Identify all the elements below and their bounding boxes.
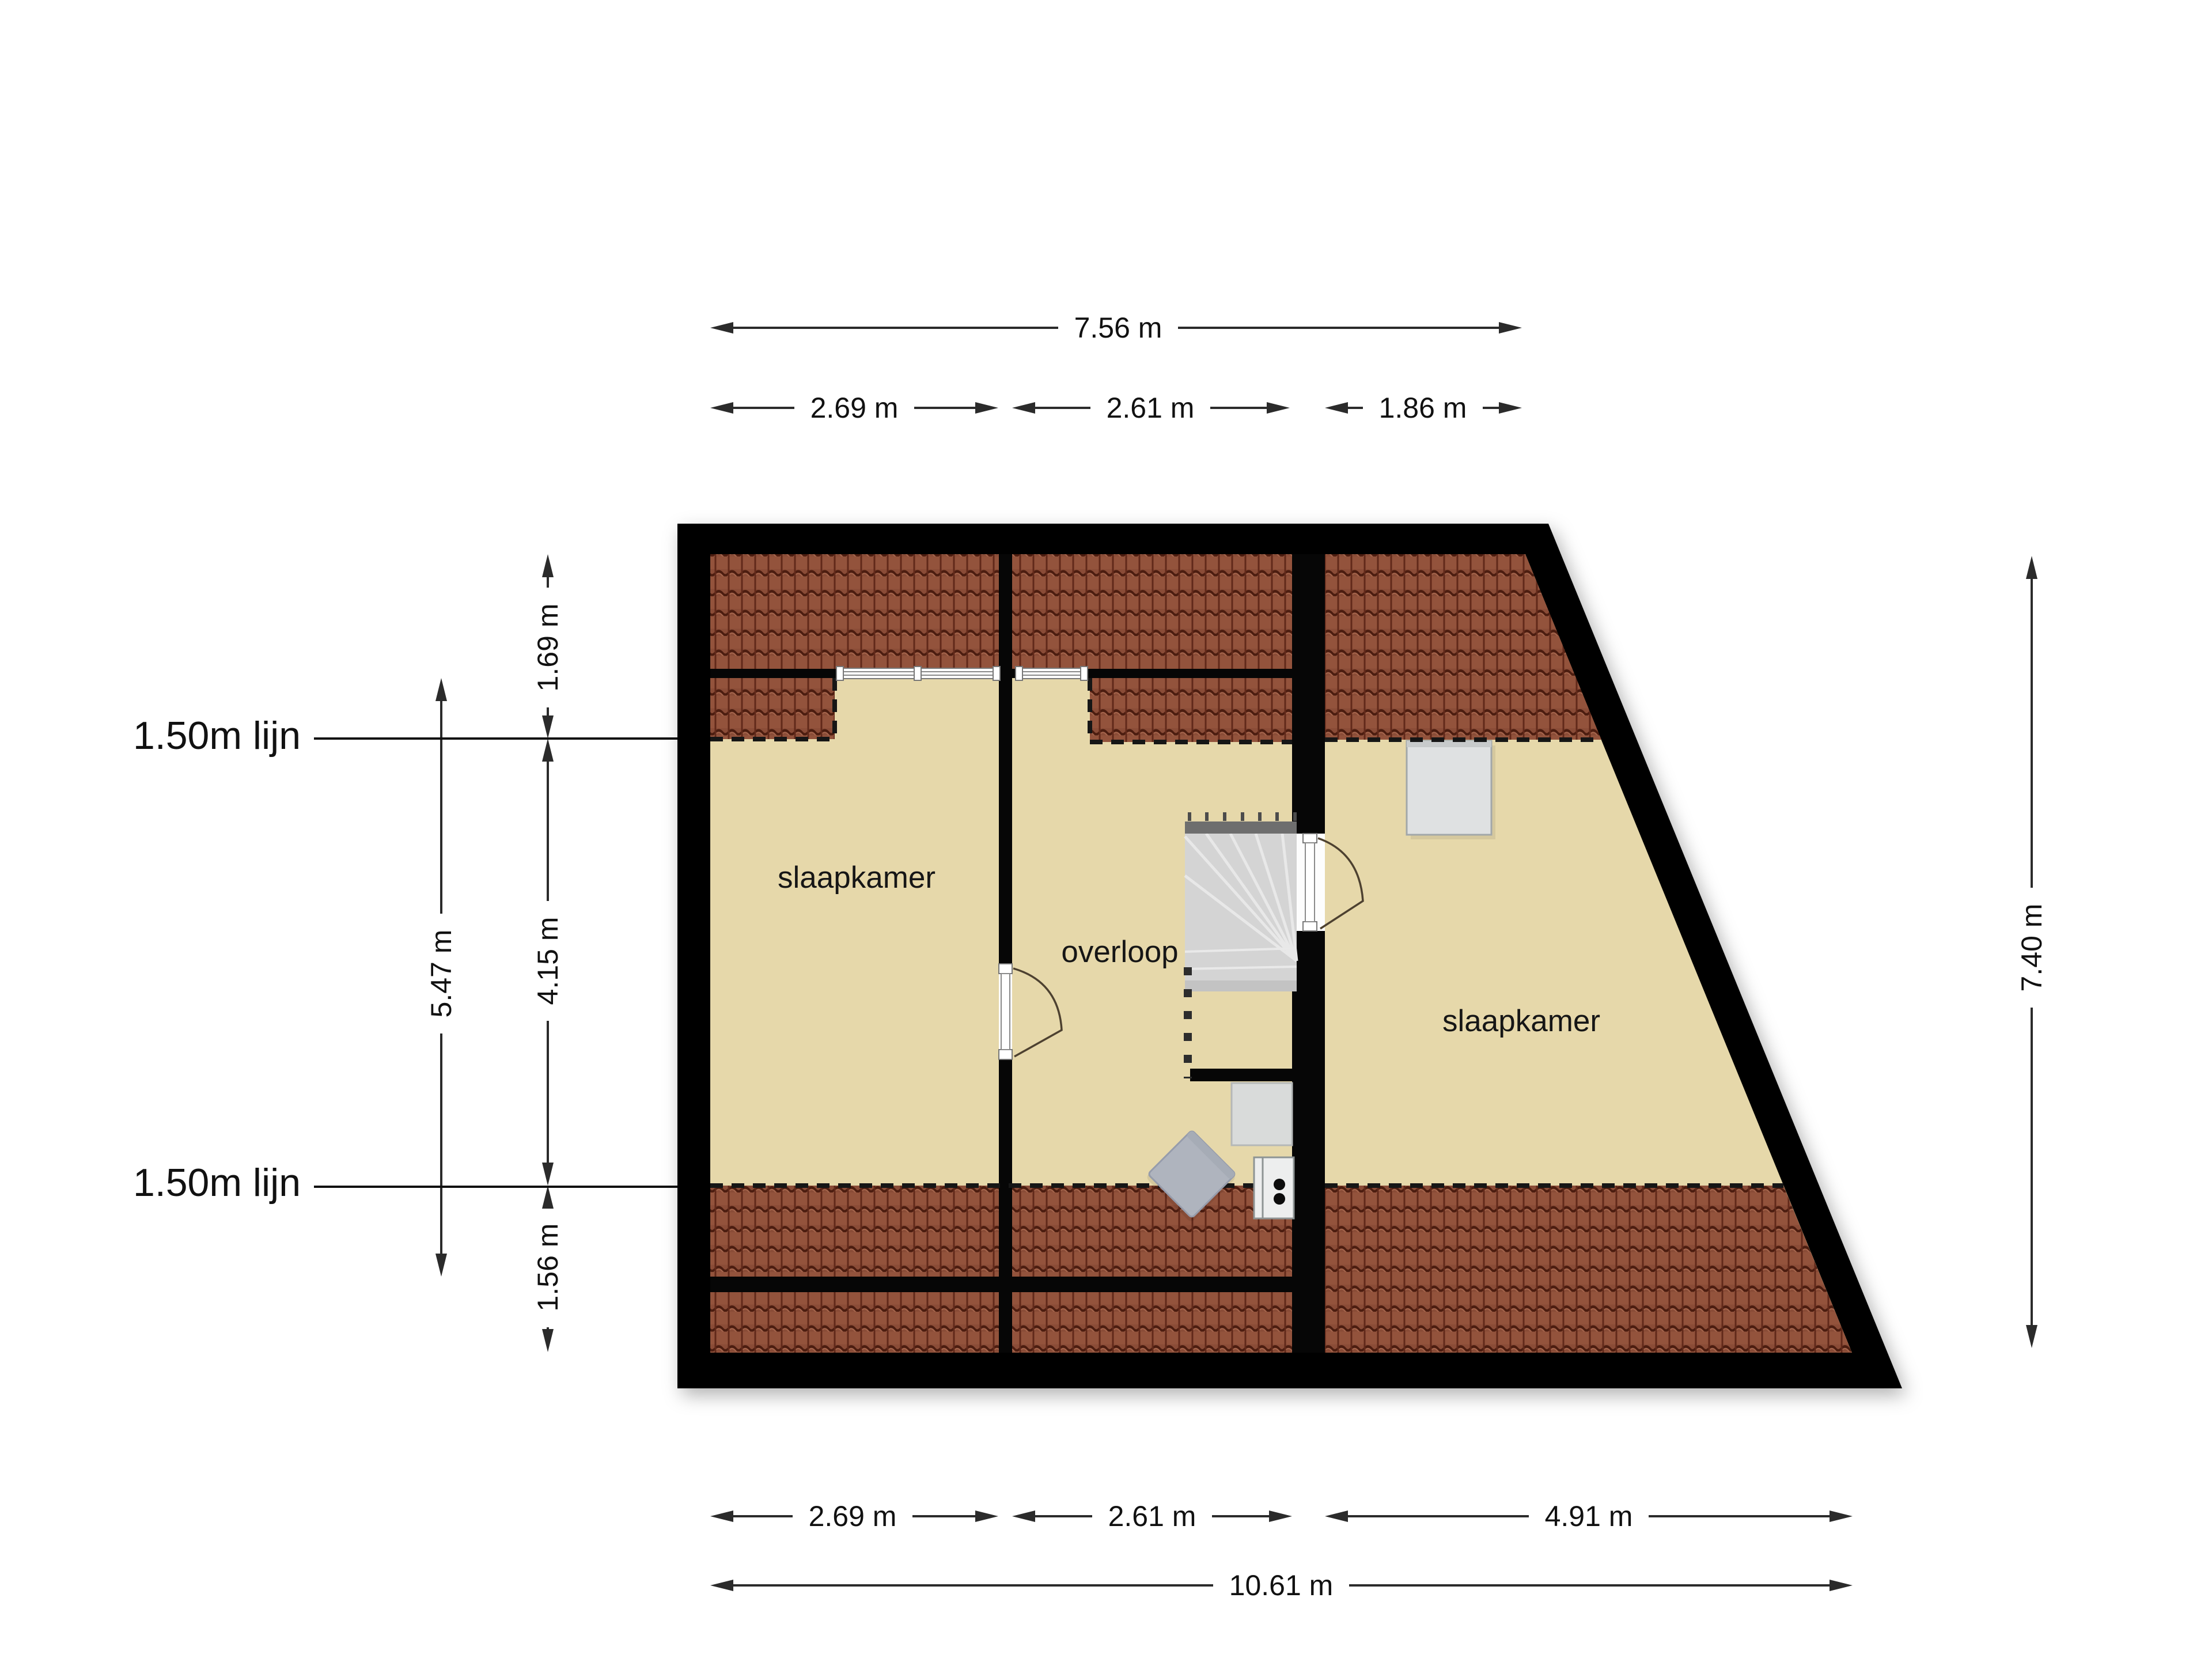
svg-text:1.86 m: 1.86 m xyxy=(1379,392,1467,424)
svg-text:7.56 m: 7.56 m xyxy=(1074,312,1162,344)
svg-text:1.50m lijn: 1.50m lijn xyxy=(133,714,301,758)
svg-text:7.40 m: 7.40 m xyxy=(2016,904,2048,992)
svg-text:1.50m lijn: 1.50m lijn xyxy=(133,1161,301,1205)
svg-text:2.61 m: 2.61 m xyxy=(1108,1500,1196,1532)
svg-text:2.69 m: 2.69 m xyxy=(810,392,899,424)
svg-text:4.91 m: 4.91 m xyxy=(1545,1500,1633,1532)
svg-text:1.69 m: 1.69 m xyxy=(532,604,564,692)
svg-text:2.61 m: 2.61 m xyxy=(1107,392,1195,424)
svg-text:10.61 m: 10.61 m xyxy=(1229,1569,1334,1602)
svg-text:4.15 m: 4.15 m xyxy=(532,917,564,1005)
svg-text:slaapkamer: slaapkamer xyxy=(778,861,935,895)
svg-text:1.56 m: 1.56 m xyxy=(532,1224,564,1312)
svg-text:2.69 m: 2.69 m xyxy=(809,1500,897,1532)
svg-text:overloop: overloop xyxy=(1061,935,1178,969)
svg-text:slaapkamer: slaapkamer xyxy=(1442,1004,1600,1038)
svg-text:5.47 m: 5.47 m xyxy=(425,930,457,1018)
